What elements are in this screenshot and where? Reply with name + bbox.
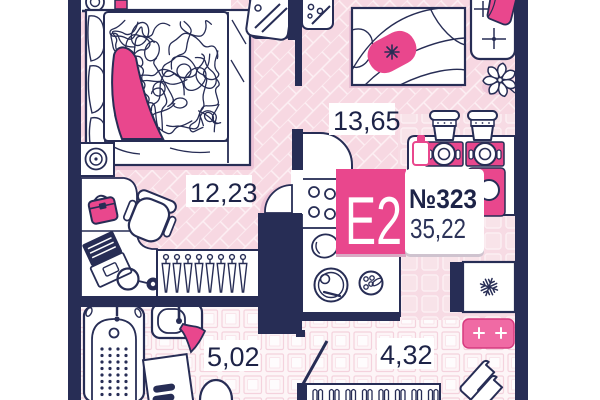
- svg-text:12,23: 12,23: [190, 178, 258, 208]
- svg-text:№323: №323: [409, 184, 477, 214]
- svg-text:4,32: 4,32: [380, 340, 433, 370]
- svg-text:5,02: 5,02: [207, 342, 260, 372]
- svg-text:13,65: 13,65: [333, 106, 401, 136]
- svg-text:35,22: 35,22: [410, 213, 466, 244]
- svg-text:E2: E2: [345, 183, 402, 259]
